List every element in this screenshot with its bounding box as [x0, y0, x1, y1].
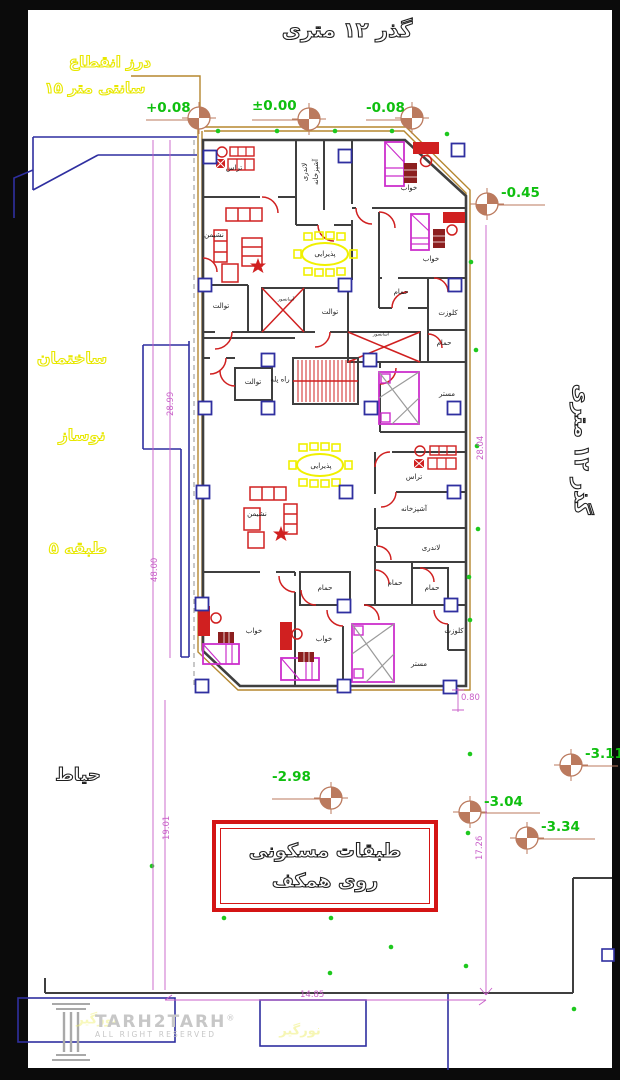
elevation-minus304: -3.04 — [484, 794, 523, 810]
bedroom2-furniture — [411, 212, 465, 250]
room-label-bedroom-4: خواب — [316, 635, 332, 643]
watermark-tagline: ALL RIGHT RESERVED — [95, 1030, 234, 1039]
elevation-minus334: -3.34 — [541, 819, 580, 835]
bedroom4-furniture — [280, 622, 319, 680]
room-label-bedroom-3: خواب — [246, 627, 262, 635]
expansion-joint-line1: درز انقطاع — [69, 53, 151, 71]
elevation-minus311: -3.11 — [585, 746, 620, 762]
watermark: TARH2TARH® ALL RIGHT RESERVED — [95, 1012, 234, 1039]
room-label-terrace-2: تراس — [406, 473, 422, 481]
road-title-right: گذر ۱۲ متری — [570, 384, 594, 515]
watermark-registered: ® — [226, 1014, 234, 1023]
room-label-closet-2: کلوزت — [444, 627, 463, 635]
dim-28-04: 28.04 — [476, 436, 486, 460]
neighbor-building-outlines — [14, 137, 614, 1070]
room-label-closet-1: کلوزت — [438, 309, 457, 317]
room-label-stairs: راه پله — [269, 376, 291, 385]
dim-19-01: 19.01 — [162, 816, 172, 840]
elevation-leaders — [146, 120, 618, 839]
lightwell-center-label: نورگیر — [279, 1024, 320, 1039]
elevation-000: ±0.00 — [252, 98, 297, 114]
room-label-bath-2: حمام — [437, 339, 452, 347]
cad-floor-plan-sheet: { "titles": { "road_top": "گذر ۱۲ متری",… — [0, 0, 620, 1080]
elevation-plus008: +0.08 — [146, 100, 191, 116]
dim-14-85: 14.85 — [300, 990, 324, 1000]
room-label-bath-5: حمام — [425, 584, 440, 592]
elevation-minus045: -0.45 — [501, 185, 540, 201]
neighbor-text-line1: ساختمان — [37, 349, 107, 368]
survey-markers — [182, 102, 588, 854]
neighbor-text-line2: نوساز — [59, 426, 106, 445]
dim-48-00: 48.00 — [150, 558, 160, 582]
room-label-kitchen-1: آشپزخانه — [312, 159, 320, 185]
room-label-reception-1: پذیرایی — [314, 250, 335, 258]
room-label-bath-1: حمام — [394, 288, 409, 296]
dim-0-80: 0.80 — [461, 693, 480, 703]
dim-28-99: 28.99 — [166, 392, 176, 416]
room-label-toilet-1: توالت — [213, 302, 230, 310]
road-title-top: گذر ۱۲ متری — [282, 18, 413, 42]
note-box: طبقات مسکونی روی همکف — [212, 820, 438, 912]
room-label-toilet-2: توالت — [322, 308, 339, 316]
neighbor-text-line3: ۵ طبقه — [49, 539, 107, 558]
bedroom3-furniture — [198, 606, 239, 664]
note-line1: طبقات مسکونی — [249, 836, 402, 866]
room-label-kitchen-2: آشپزخانه — [401, 505, 427, 513]
room-label-elevator-1: آسانسور — [278, 298, 294, 303]
room-label-reception-2: پذیرایی — [310, 462, 331, 470]
building-interior-walls — [203, 141, 466, 686]
room-label-bath-3: حمام — [318, 584, 333, 592]
room-label-bedroom-1: خواب — [401, 184, 417, 192]
terrace2-furniture — [414, 446, 456, 469]
watermark-brand: TARH2TARH — [95, 1012, 226, 1032]
room-label-living-2: نشیمن — [247, 510, 267, 518]
note-line2: روی همکف — [272, 866, 378, 896]
room-label-living-1: نشیمن — [204, 231, 224, 239]
room-label-master-2: مستر — [411, 660, 427, 668]
room-label-master-1: مستر — [439, 390, 455, 398]
room-label-toilet-3: توالت — [245, 378, 262, 386]
expansion-joint-line2: ۱۵ سانتی متر — [45, 79, 146, 97]
room-label-laundry-2: لاندری — [422, 544, 440, 552]
room-label-terrace-1: تراس — [226, 164, 242, 172]
room-label-bath-4: حمام — [388, 579, 403, 587]
master1-bed — [379, 372, 419, 424]
master2-bed — [352, 624, 394, 682]
dim-17-26: 17.26 — [475, 836, 485, 860]
room-label-elevator-2: آسانسور — [373, 333, 389, 338]
elevation-minus008: -0.08 — [366, 100, 405, 116]
room-label-bedroom-2: خواب — [423, 255, 439, 263]
room-label-laundry-1: لاندری — [301, 163, 309, 181]
yard-label: حیاط — [55, 765, 101, 786]
staircase — [293, 358, 358, 404]
elevation-minus298: -2.98 — [272, 769, 311, 785]
bedroom1-furniture — [385, 142, 439, 186]
